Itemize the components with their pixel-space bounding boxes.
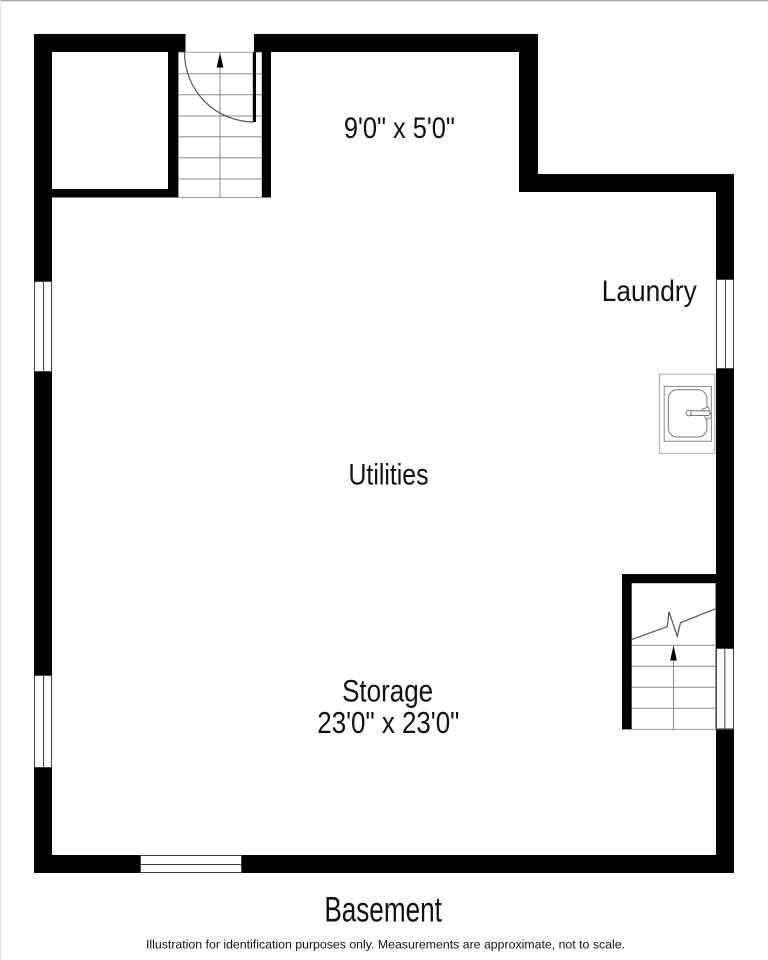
svg-text:Storage: Storage [342, 673, 433, 709]
svg-text:Utilities: Utilities [349, 458, 429, 491]
svg-text:Basement: Basement [324, 891, 442, 930]
svg-text:23'0" x 23'0": 23'0" x 23'0" [317, 705, 459, 740]
svg-text:Laundry: Laundry [602, 275, 697, 308]
svg-text:Illustration for identificatio: Illustration for identification purposes… [146, 938, 625, 952]
svg-text:9'0" x 5'0": 9'0" x 5'0" [344, 112, 455, 145]
